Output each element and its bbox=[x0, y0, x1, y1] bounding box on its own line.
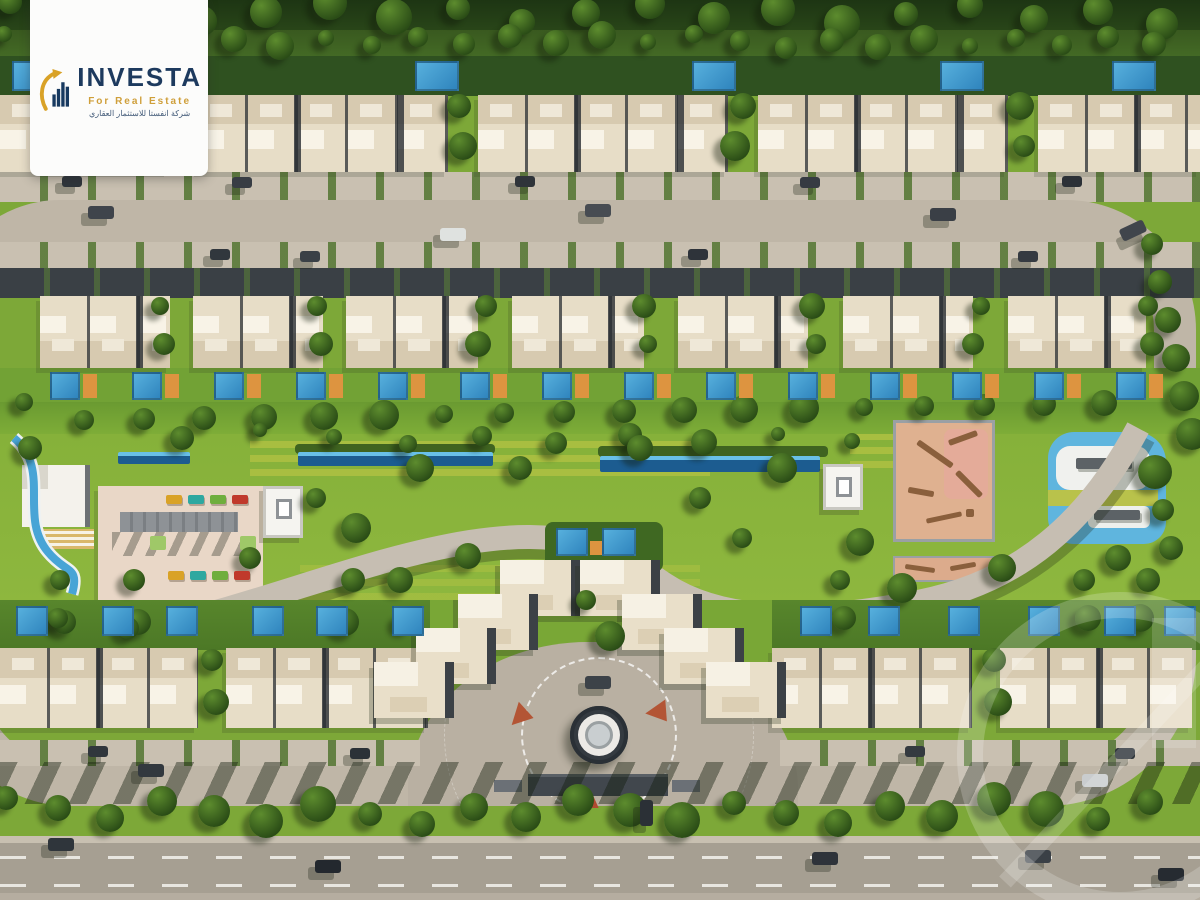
pool-deck bbox=[247, 374, 261, 398]
tree bbox=[1138, 296, 1158, 316]
roof-step bbox=[390, 697, 427, 712]
tree bbox=[543, 30, 569, 56]
tree bbox=[363, 36, 381, 54]
car bbox=[88, 746, 108, 757]
car bbox=[88, 206, 114, 219]
tree bbox=[18, 436, 42, 460]
row2-garage-strip bbox=[0, 268, 1200, 298]
tree bbox=[799, 293, 825, 319]
tree bbox=[775, 37, 797, 59]
tree bbox=[266, 32, 294, 60]
villa-pool bbox=[1164, 606, 1196, 636]
roof-highlight bbox=[622, 594, 666, 618]
tree bbox=[406, 454, 434, 482]
tree bbox=[689, 487, 711, 509]
tree bbox=[984, 688, 1012, 716]
investa-logo-card: INVESTA For Real Estate شركة انفستا للاس… bbox=[30, 0, 208, 176]
backyard-pool bbox=[692, 61, 736, 91]
tree bbox=[972, 297, 990, 315]
tree bbox=[894, 2, 918, 26]
house-block bbox=[772, 648, 972, 728]
pool-deck bbox=[985, 374, 999, 398]
tree bbox=[307, 296, 327, 316]
tree bbox=[449, 132, 477, 160]
garage-shadow bbox=[193, 296, 323, 368]
cluster-house bbox=[374, 662, 454, 718]
tree bbox=[1148, 270, 1172, 294]
tree bbox=[203, 689, 229, 715]
tree bbox=[460, 793, 488, 821]
tree bbox=[198, 795, 230, 827]
tree bbox=[771, 427, 785, 441]
garage-shadow bbox=[445, 662, 454, 718]
roof-highlight bbox=[706, 662, 750, 686]
deck-lounger bbox=[188, 495, 204, 504]
tree bbox=[50, 570, 70, 590]
tree bbox=[300, 786, 336, 822]
tree bbox=[830, 570, 850, 590]
tree bbox=[369, 400, 399, 430]
villa-pool bbox=[16, 606, 48, 636]
tree bbox=[399, 435, 417, 453]
aerial-masterplan-render: INVESTA For Real Estate شركة انفستا للاس… bbox=[0, 0, 1200, 900]
car bbox=[688, 249, 708, 260]
house-block bbox=[843, 296, 973, 368]
tree bbox=[832, 606, 856, 630]
roof-highlight bbox=[664, 628, 708, 652]
garage-shadow bbox=[512, 296, 644, 368]
pool-deck bbox=[83, 374, 97, 398]
tree bbox=[730, 93, 756, 119]
villa-pool bbox=[102, 606, 134, 636]
villa-pool bbox=[214, 372, 244, 400]
car bbox=[138, 764, 164, 777]
car bbox=[62, 176, 82, 187]
villa-pool bbox=[800, 606, 832, 636]
tree bbox=[1105, 545, 1131, 571]
house-block bbox=[512, 296, 644, 368]
lane-marking bbox=[0, 856, 1200, 859]
tree bbox=[326, 429, 342, 445]
tree bbox=[358, 802, 382, 826]
tree bbox=[15, 393, 33, 411]
tree bbox=[1140, 332, 1164, 356]
car bbox=[585, 204, 611, 217]
deck-lounger-slab bbox=[1076, 458, 1132, 469]
tree bbox=[45, 795, 71, 821]
tree bbox=[133, 408, 155, 430]
garage-shadow bbox=[758, 95, 1008, 172]
car bbox=[232, 177, 252, 188]
car bbox=[1025, 850, 1051, 863]
tree bbox=[732, 528, 752, 548]
tree bbox=[153, 333, 175, 355]
tree bbox=[962, 333, 984, 355]
tree bbox=[435, 405, 453, 423]
tree bbox=[887, 573, 917, 603]
pool-deck bbox=[739, 374, 753, 398]
tree bbox=[632, 294, 656, 318]
pool-deck bbox=[1067, 374, 1081, 398]
tree bbox=[1028, 791, 1064, 827]
cluster-pool bbox=[556, 528, 588, 556]
villa-pool bbox=[870, 372, 900, 400]
tree bbox=[1162, 344, 1190, 372]
car bbox=[1018, 251, 1038, 262]
tree bbox=[671, 397, 697, 423]
garage-shadow bbox=[478, 95, 728, 172]
garden-pavilion bbox=[823, 464, 863, 510]
garage-shadow bbox=[678, 296, 808, 368]
boulevard-curb bbox=[0, 836, 1200, 843]
play-equipment bbox=[926, 511, 962, 523]
tree bbox=[494, 403, 514, 423]
tree bbox=[151, 297, 169, 315]
car bbox=[315, 860, 341, 873]
villa-pool bbox=[868, 606, 900, 636]
villa-pool bbox=[316, 606, 348, 636]
roof-highlight bbox=[580, 560, 624, 584]
tree bbox=[447, 94, 471, 118]
tree bbox=[453, 33, 475, 55]
deck-lounger bbox=[168, 571, 184, 580]
house-block bbox=[1008, 296, 1146, 368]
deck-lounger bbox=[212, 571, 228, 580]
villa-pool bbox=[1028, 606, 1060, 636]
tree bbox=[562, 784, 594, 816]
logo-text-block: INVESTA For Real Estate شركة انفستا للاس… bbox=[77, 62, 202, 118]
tree bbox=[1007, 29, 1025, 47]
tree bbox=[664, 802, 700, 838]
cluster-house bbox=[706, 662, 786, 718]
villa-pool bbox=[952, 372, 982, 400]
play-equipment bbox=[966, 509, 974, 517]
tree bbox=[1155, 307, 1181, 333]
pool-deck bbox=[493, 374, 507, 398]
garage-shadow bbox=[777, 662, 786, 718]
row2-pool-band bbox=[0, 368, 1200, 406]
tree bbox=[253, 423, 267, 437]
tree bbox=[48, 608, 68, 628]
villa-pool bbox=[252, 606, 284, 636]
car bbox=[515, 176, 535, 187]
tree bbox=[1138, 455, 1172, 489]
tree bbox=[730, 31, 750, 51]
deck-lounger bbox=[166, 495, 182, 504]
tree bbox=[147, 786, 177, 816]
lap-pool bbox=[118, 452, 190, 464]
car bbox=[930, 208, 956, 221]
tree bbox=[639, 335, 657, 353]
tree bbox=[74, 410, 94, 430]
car bbox=[812, 852, 838, 865]
car bbox=[300, 251, 320, 262]
boulevard-far-edge bbox=[0, 893, 1200, 900]
garage-shadow bbox=[1008, 296, 1146, 368]
villa-pool bbox=[788, 372, 818, 400]
villa-pool bbox=[460, 372, 490, 400]
house-block bbox=[1038, 95, 1200, 172]
tree bbox=[409, 811, 435, 837]
villa-pool bbox=[132, 372, 162, 400]
lawn-stripe bbox=[1048, 490, 1158, 506]
tree bbox=[221, 26, 247, 52]
pool-deck bbox=[165, 374, 179, 398]
tree bbox=[846, 528, 874, 556]
tree bbox=[576, 590, 596, 610]
tree bbox=[855, 398, 873, 416]
villa-pool bbox=[50, 372, 80, 400]
tree bbox=[1086, 807, 1110, 831]
house-block bbox=[198, 95, 448, 172]
car bbox=[350, 748, 370, 759]
garage-shadow bbox=[487, 628, 496, 684]
tree bbox=[926, 800, 958, 832]
deck-lounger bbox=[190, 571, 206, 580]
backyard-pool bbox=[415, 61, 459, 91]
tree bbox=[123, 569, 145, 591]
tree bbox=[595, 621, 625, 651]
house-block bbox=[0, 648, 198, 728]
garage-shadow bbox=[1038, 95, 1200, 172]
car bbox=[1158, 868, 1184, 881]
tree bbox=[201, 649, 223, 671]
tree bbox=[511, 802, 541, 832]
tree bbox=[498, 24, 522, 48]
car bbox=[585, 676, 611, 689]
brand-name: INVESTA bbox=[77, 62, 202, 93]
tree bbox=[341, 513, 371, 543]
garage-shadow bbox=[772, 648, 972, 728]
tree bbox=[698, 2, 730, 34]
pool-deck bbox=[657, 374, 671, 398]
tree bbox=[306, 488, 326, 508]
tree-shadow-band bbox=[0, 762, 1200, 804]
tree bbox=[376, 0, 412, 35]
tree bbox=[472, 426, 492, 446]
roof-highlight bbox=[500, 560, 544, 584]
tree bbox=[553, 401, 575, 423]
tree bbox=[508, 456, 532, 480]
car bbox=[440, 228, 466, 241]
house-block bbox=[193, 296, 323, 368]
tree bbox=[1137, 789, 1163, 815]
pergola-shadow bbox=[112, 532, 242, 556]
tree bbox=[1013, 135, 1035, 157]
play-equipment bbox=[950, 562, 976, 571]
tree bbox=[910, 25, 938, 53]
villa-pool bbox=[166, 606, 198, 636]
deck-mat bbox=[150, 536, 166, 550]
garage-shadow bbox=[843, 296, 973, 368]
pool-deck bbox=[575, 374, 589, 398]
tree bbox=[1006, 92, 1034, 120]
tree bbox=[96, 804, 124, 832]
deck-lounger bbox=[210, 495, 226, 504]
pavilion-core bbox=[276, 499, 292, 519]
tree bbox=[685, 25, 703, 43]
garage-shadow bbox=[198, 95, 448, 172]
tree bbox=[914, 396, 934, 416]
garage-shadow bbox=[0, 648, 198, 728]
villa-pool bbox=[1104, 606, 1136, 636]
tree bbox=[627, 435, 653, 461]
car bbox=[640, 800, 653, 826]
investa-logo-icon bbox=[38, 54, 71, 126]
kids-playground bbox=[893, 420, 995, 542]
car bbox=[905, 746, 925, 757]
tree bbox=[875, 791, 905, 821]
deck-pergola bbox=[120, 512, 238, 532]
deck-lounger bbox=[234, 571, 250, 580]
tree bbox=[1176, 418, 1200, 450]
tree bbox=[170, 426, 194, 450]
lane-marking bbox=[0, 884, 1200, 887]
car bbox=[48, 838, 74, 851]
villa-pool bbox=[1116, 372, 1146, 400]
car bbox=[1062, 176, 1082, 187]
tree bbox=[341, 568, 365, 592]
cluster-pool bbox=[602, 528, 636, 556]
garden-pavilion bbox=[263, 486, 303, 538]
villa-pool bbox=[948, 606, 980, 636]
house-block bbox=[758, 95, 1008, 172]
tree bbox=[1073, 569, 1095, 591]
tree bbox=[588, 21, 616, 49]
pool-deck bbox=[1149, 374, 1163, 398]
car bbox=[800, 177, 820, 188]
tree bbox=[249, 804, 283, 838]
tree bbox=[806, 334, 826, 354]
tree bbox=[1091, 390, 1117, 416]
tree bbox=[722, 791, 746, 815]
main-boulevard bbox=[0, 836, 1200, 900]
roof-highlight bbox=[458, 594, 502, 618]
villa-pool bbox=[1034, 372, 1064, 400]
pavilion-core bbox=[836, 477, 852, 497]
garage-shadow bbox=[1000, 648, 1192, 728]
villa-pool bbox=[542, 372, 572, 400]
backyard-pool bbox=[940, 61, 984, 91]
tree bbox=[720, 131, 750, 161]
tree bbox=[239, 547, 261, 569]
clubhouse-steps bbox=[42, 529, 94, 549]
tree bbox=[977, 782, 1011, 816]
tree bbox=[1097, 26, 1119, 48]
garage-shadow bbox=[529, 594, 538, 650]
tree bbox=[1141, 233, 1163, 255]
tree bbox=[824, 809, 852, 837]
brand-tagline: For Real Estate bbox=[88, 96, 191, 107]
tree bbox=[1169, 381, 1199, 411]
tree bbox=[310, 402, 338, 430]
villa-pool bbox=[378, 372, 408, 400]
tree bbox=[612, 399, 636, 423]
tree bbox=[0, 786, 18, 810]
pool-deck bbox=[411, 374, 425, 398]
tree bbox=[455, 543, 481, 569]
villa-pool bbox=[706, 372, 736, 400]
car bbox=[1115, 748, 1135, 759]
tree bbox=[982, 648, 1006, 672]
villa-pool bbox=[296, 372, 326, 400]
pool-deck bbox=[821, 374, 835, 398]
tree bbox=[318, 30, 334, 46]
tree bbox=[408, 27, 428, 47]
deck-lounger-slab bbox=[1094, 510, 1140, 520]
tree bbox=[640, 34, 656, 50]
pool-deck bbox=[903, 374, 917, 398]
tree bbox=[309, 332, 333, 356]
tree bbox=[691, 429, 717, 455]
house-block bbox=[478, 95, 728, 172]
tree bbox=[767, 453, 797, 483]
tree bbox=[1020, 5, 1048, 33]
house-block bbox=[346, 296, 478, 368]
tree bbox=[988, 554, 1016, 582]
play-equipment bbox=[908, 487, 935, 497]
tree bbox=[865, 34, 891, 60]
deck-lounger bbox=[232, 495, 248, 504]
lap-pool bbox=[298, 452, 493, 466]
tree bbox=[1075, 605, 1101, 631]
roof-highlight bbox=[374, 662, 418, 686]
tree bbox=[1142, 32, 1166, 56]
car bbox=[1082, 774, 1108, 787]
tree bbox=[545, 432, 567, 454]
garage-shadow bbox=[346, 296, 478, 368]
row1-driveways bbox=[0, 172, 1200, 202]
tree bbox=[1136, 568, 1160, 592]
backyard-pool bbox=[1112, 61, 1156, 91]
tree bbox=[475, 295, 497, 317]
tree bbox=[387, 567, 413, 593]
tree bbox=[820, 28, 844, 52]
clubhouse-roof-notch bbox=[22, 465, 48, 489]
tree bbox=[1159, 536, 1183, 560]
cluster-pool-deck bbox=[590, 541, 602, 555]
villa-pool bbox=[624, 372, 654, 400]
tree bbox=[192, 406, 216, 430]
tree bbox=[773, 800, 799, 826]
tree bbox=[844, 433, 860, 449]
tree bbox=[1152, 499, 1174, 521]
house-block bbox=[678, 296, 808, 368]
villa-pool bbox=[392, 606, 424, 636]
fountain-basin bbox=[585, 721, 613, 749]
pool-deck bbox=[329, 374, 343, 398]
roof-step bbox=[722, 697, 759, 712]
tree bbox=[962, 38, 978, 54]
play-equipment bbox=[905, 564, 935, 573]
tree bbox=[1052, 35, 1072, 55]
car bbox=[210, 249, 230, 260]
brand-tagline-arabic: شركة انفستا للاستثمار العقاري bbox=[89, 109, 190, 118]
house-block bbox=[1000, 648, 1192, 728]
tree bbox=[465, 331, 491, 357]
